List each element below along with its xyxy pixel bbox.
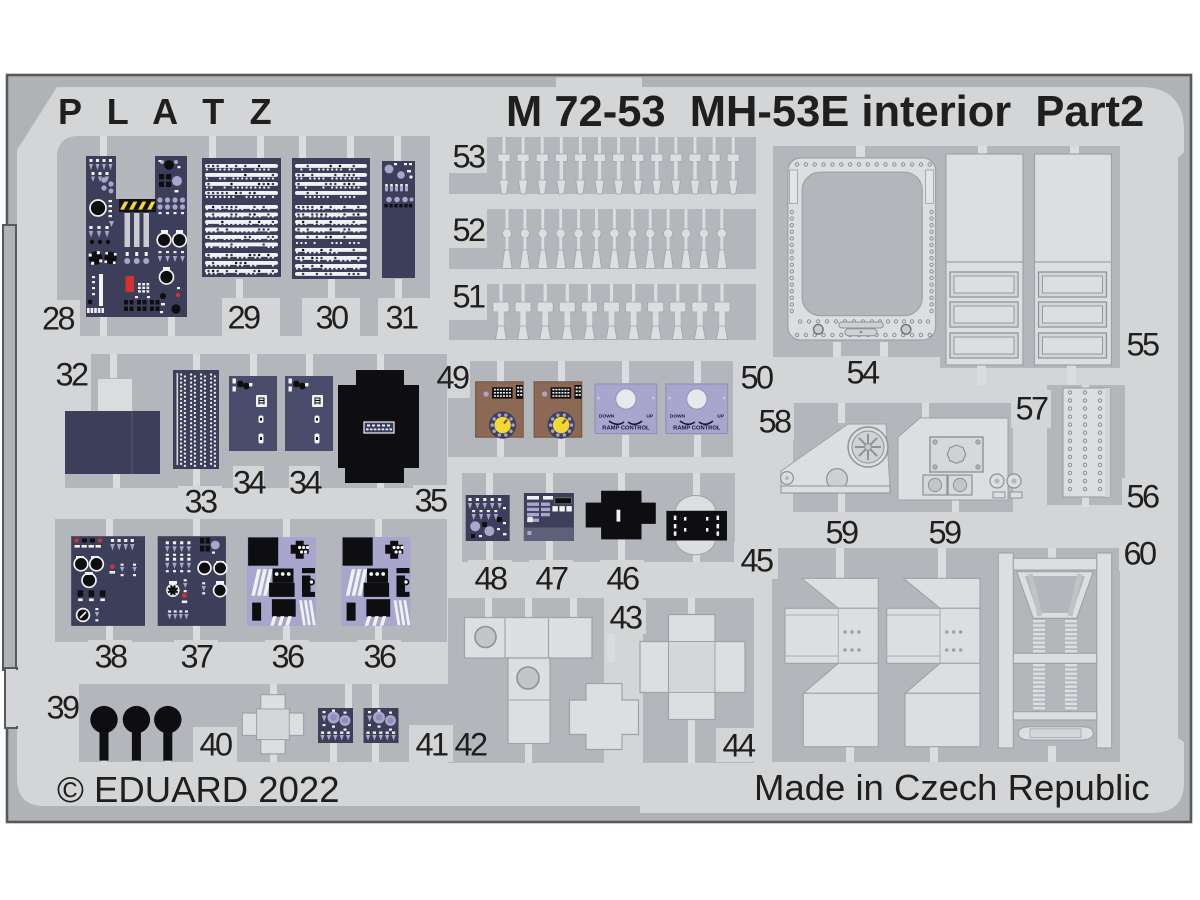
svg-text:UP: UP [717, 414, 724, 420]
svg-text:36: 36 [272, 639, 304, 675]
svg-text:Made in Czech Republic: Made in Czech Republic [754, 767, 1150, 808]
svg-text:30: 30 [316, 300, 348, 336]
svg-text:39: 39 [47, 690, 79, 726]
svg-text:52: 52 [453, 212, 485, 248]
svg-text:34: 34 [289, 465, 322, 501]
svg-text:51: 51 [453, 279, 485, 315]
svg-text:M 72-53 MH-53E interior Part: M 72-53 MH-53E interior Part2 [506, 88, 1144, 136]
svg-text:28: 28 [42, 301, 74, 337]
svg-text:46: 46 [607, 561, 639, 597]
svg-text:45: 45 [741, 543, 773, 579]
svg-text:43: 43 [610, 600, 642, 636]
svg-text:42: 42 [455, 727, 487, 763]
svg-text:33: 33 [185, 484, 217, 520]
svg-text:57: 57 [1016, 391, 1048, 427]
svg-text:40: 40 [200, 727, 232, 763]
svg-text:29: 29 [228, 300, 260, 336]
svg-text:36: 36 [364, 639, 396, 675]
svg-text:DOWN: DOWN [670, 414, 686, 420]
svg-text:50: 50 [741, 360, 773, 396]
svg-text:RAMP CONTROL: RAMP CONTROL [673, 426, 721, 432]
svg-text:DOWN: DOWN [599, 414, 615, 420]
svg-text:32: 32 [56, 357, 88, 393]
svg-text:RAMP CONTROL: RAMP CONTROL [602, 426, 650, 432]
svg-text:59: 59 [929, 515, 961, 551]
svg-text:58: 58 [759, 404, 791, 440]
svg-text:55: 55 [1127, 327, 1159, 363]
svg-text:P L A T Z: P L A T Z [58, 91, 279, 132]
svg-text:44: 44 [723, 728, 756, 764]
svg-text:34: 34 [233, 465, 266, 501]
svg-text:54: 54 [847, 355, 880, 391]
svg-text:56: 56 [1127, 479, 1159, 515]
svg-text:35: 35 [415, 483, 447, 519]
svg-text:37: 37 [181, 639, 213, 675]
svg-text:48: 48 [475, 561, 507, 597]
svg-text:53: 53 [453, 139, 485, 175]
svg-text:UP: UP [646, 414, 653, 420]
svg-text:31: 31 [386, 300, 418, 336]
svg-text:© EDUARD 2022: © EDUARD 2022 [57, 769, 340, 810]
svg-text:47: 47 [536, 561, 568, 597]
svg-text:60: 60 [1124, 536, 1156, 572]
svg-text:59: 59 [826, 515, 858, 551]
svg-text:38: 38 [95, 639, 127, 675]
svg-text:41: 41 [416, 727, 448, 763]
svg-text:49: 49 [437, 360, 469, 396]
